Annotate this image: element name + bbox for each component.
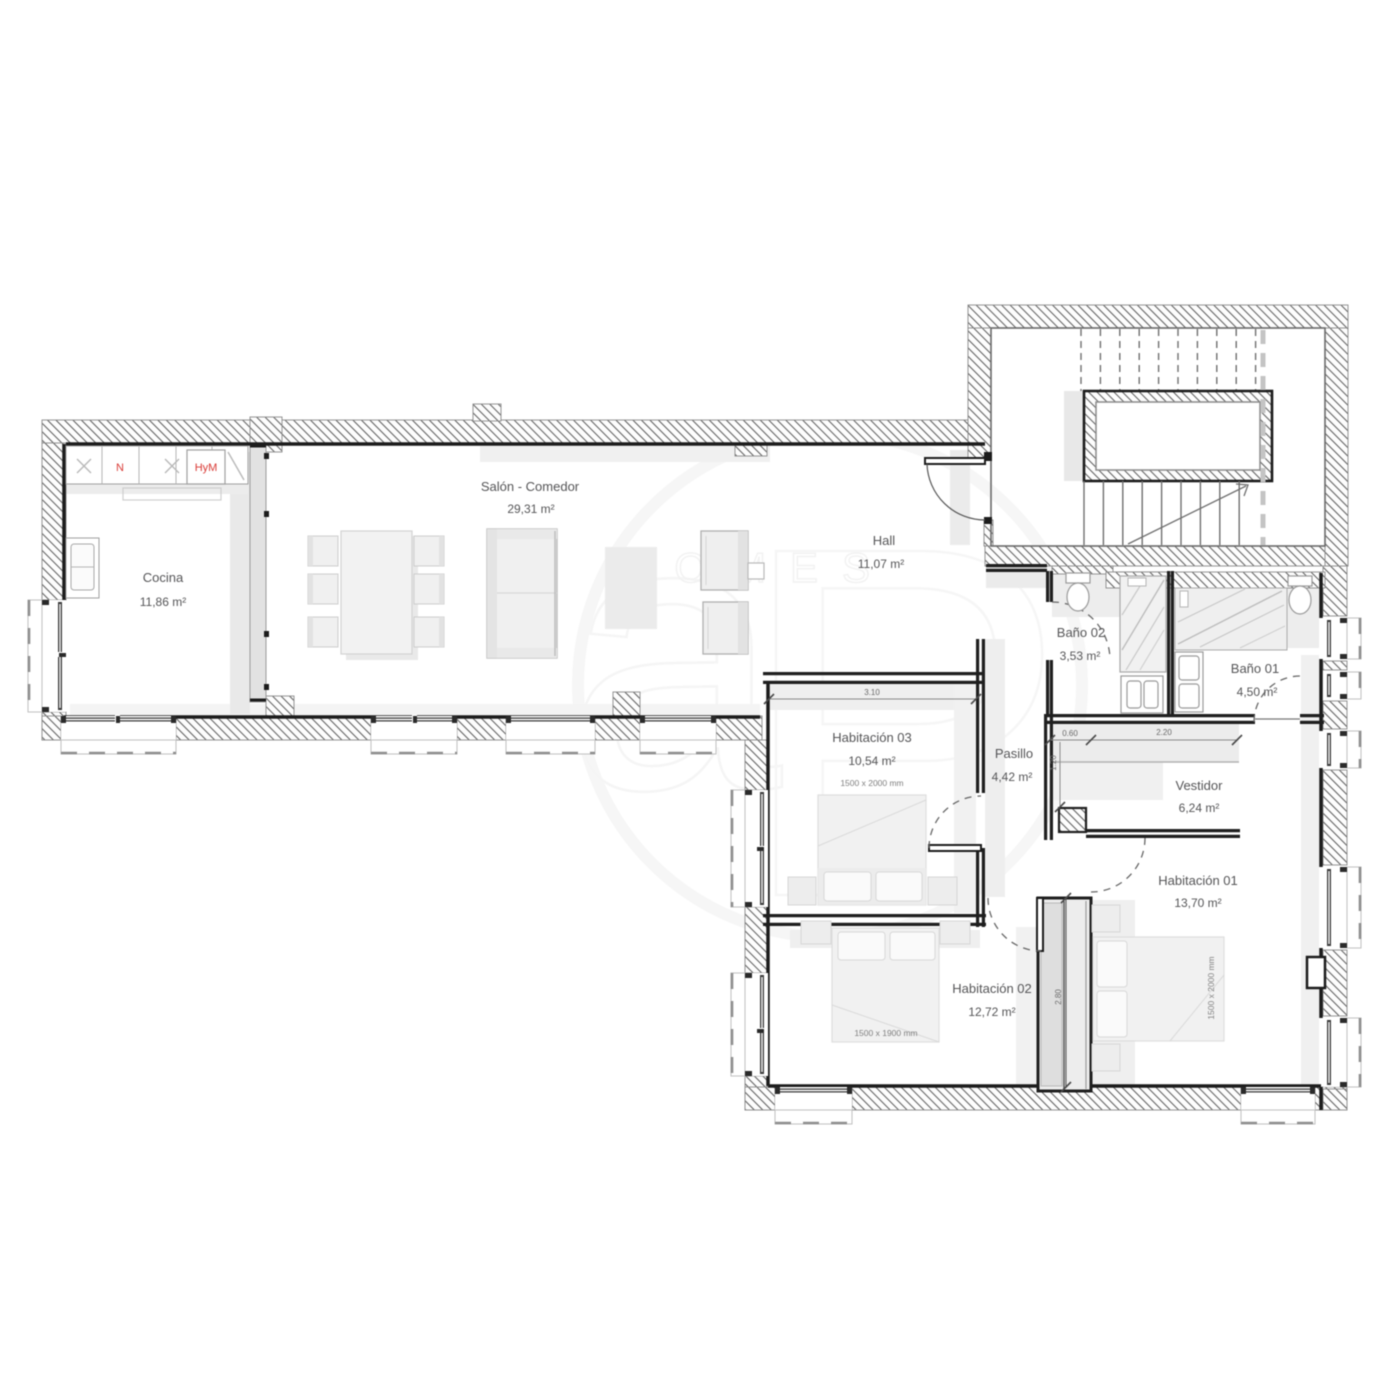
svg-text:10,54 m²: 10,54 m² (848, 754, 895, 768)
svg-text:2.80: 2.80 (1054, 989, 1063, 1005)
svg-text:4,50 m²: 4,50 m² (1237, 685, 1278, 699)
svg-text:N: N (116, 462, 124, 474)
svg-text:29,31 m²: 29,31 m² (507, 502, 554, 516)
svg-text:1500 x 1900 mm: 1500 x 1900 mm (854, 1028, 917, 1038)
svg-text:1500 x 2000 mm: 1500 x 2000 mm (1206, 956, 1216, 1019)
svg-text:3.10: 3.10 (864, 688, 880, 697)
svg-text:13,70 m²: 13,70 m² (1174, 896, 1221, 910)
svg-text:6,24 m²: 6,24 m² (1179, 801, 1220, 815)
svg-text:Pasillo: Pasillo (995, 746, 1033, 761)
svg-text:Hall: Hall (873, 533, 896, 548)
svg-text:1500 x 2000 mm: 1500 x 2000 mm (840, 778, 903, 788)
svg-text:Baño 01: Baño 01 (1231, 661, 1279, 676)
svg-text:Vestidor: Vestidor (1176, 778, 1224, 793)
svg-text:11,07 m²: 11,07 m² (858, 557, 904, 571)
svg-text:2.20: 2.20 (1156, 728, 1172, 737)
svg-text:Habitación 01: Habitación 01 (1158, 873, 1238, 888)
svg-text:4,42 m²: 4,42 m² (992, 770, 1033, 784)
svg-text:12,72 m²: 12,72 m² (968, 1005, 1015, 1019)
svg-text:3,53 m²: 3,53 m² (1060, 649, 1101, 663)
svg-text:Cocina: Cocina (143, 570, 184, 585)
svg-text:HyM: HyM (195, 462, 218, 474)
svg-text:Baño 02: Baño 02 (1057, 625, 1105, 640)
svg-text:11,86 m²: 11,86 m² (140, 595, 186, 609)
svg-text:0.60: 0.60 (1062, 729, 1078, 738)
svg-text:Habitación 03: Habitación 03 (832, 730, 912, 745)
svg-text:1.20: 1.20 (1049, 755, 1058, 771)
svg-text:Salón - Comedor: Salón - Comedor (481, 479, 580, 494)
svg-text:Habitación 02: Habitación 02 (952, 981, 1032, 996)
